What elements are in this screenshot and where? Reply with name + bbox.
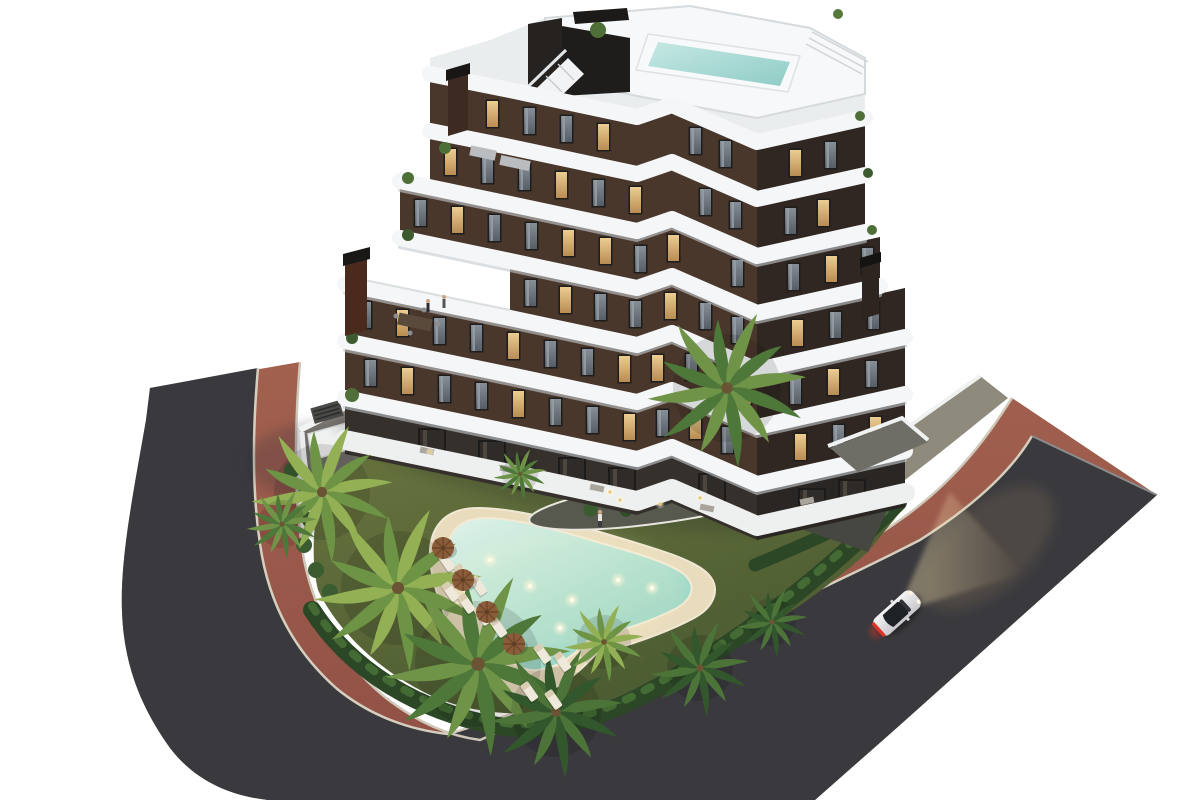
roof-tree (590, 22, 606, 38)
apartment-building (343, 6, 928, 540)
roof-plant (833, 9, 843, 19)
architectural-render (0, 0, 1200, 800)
